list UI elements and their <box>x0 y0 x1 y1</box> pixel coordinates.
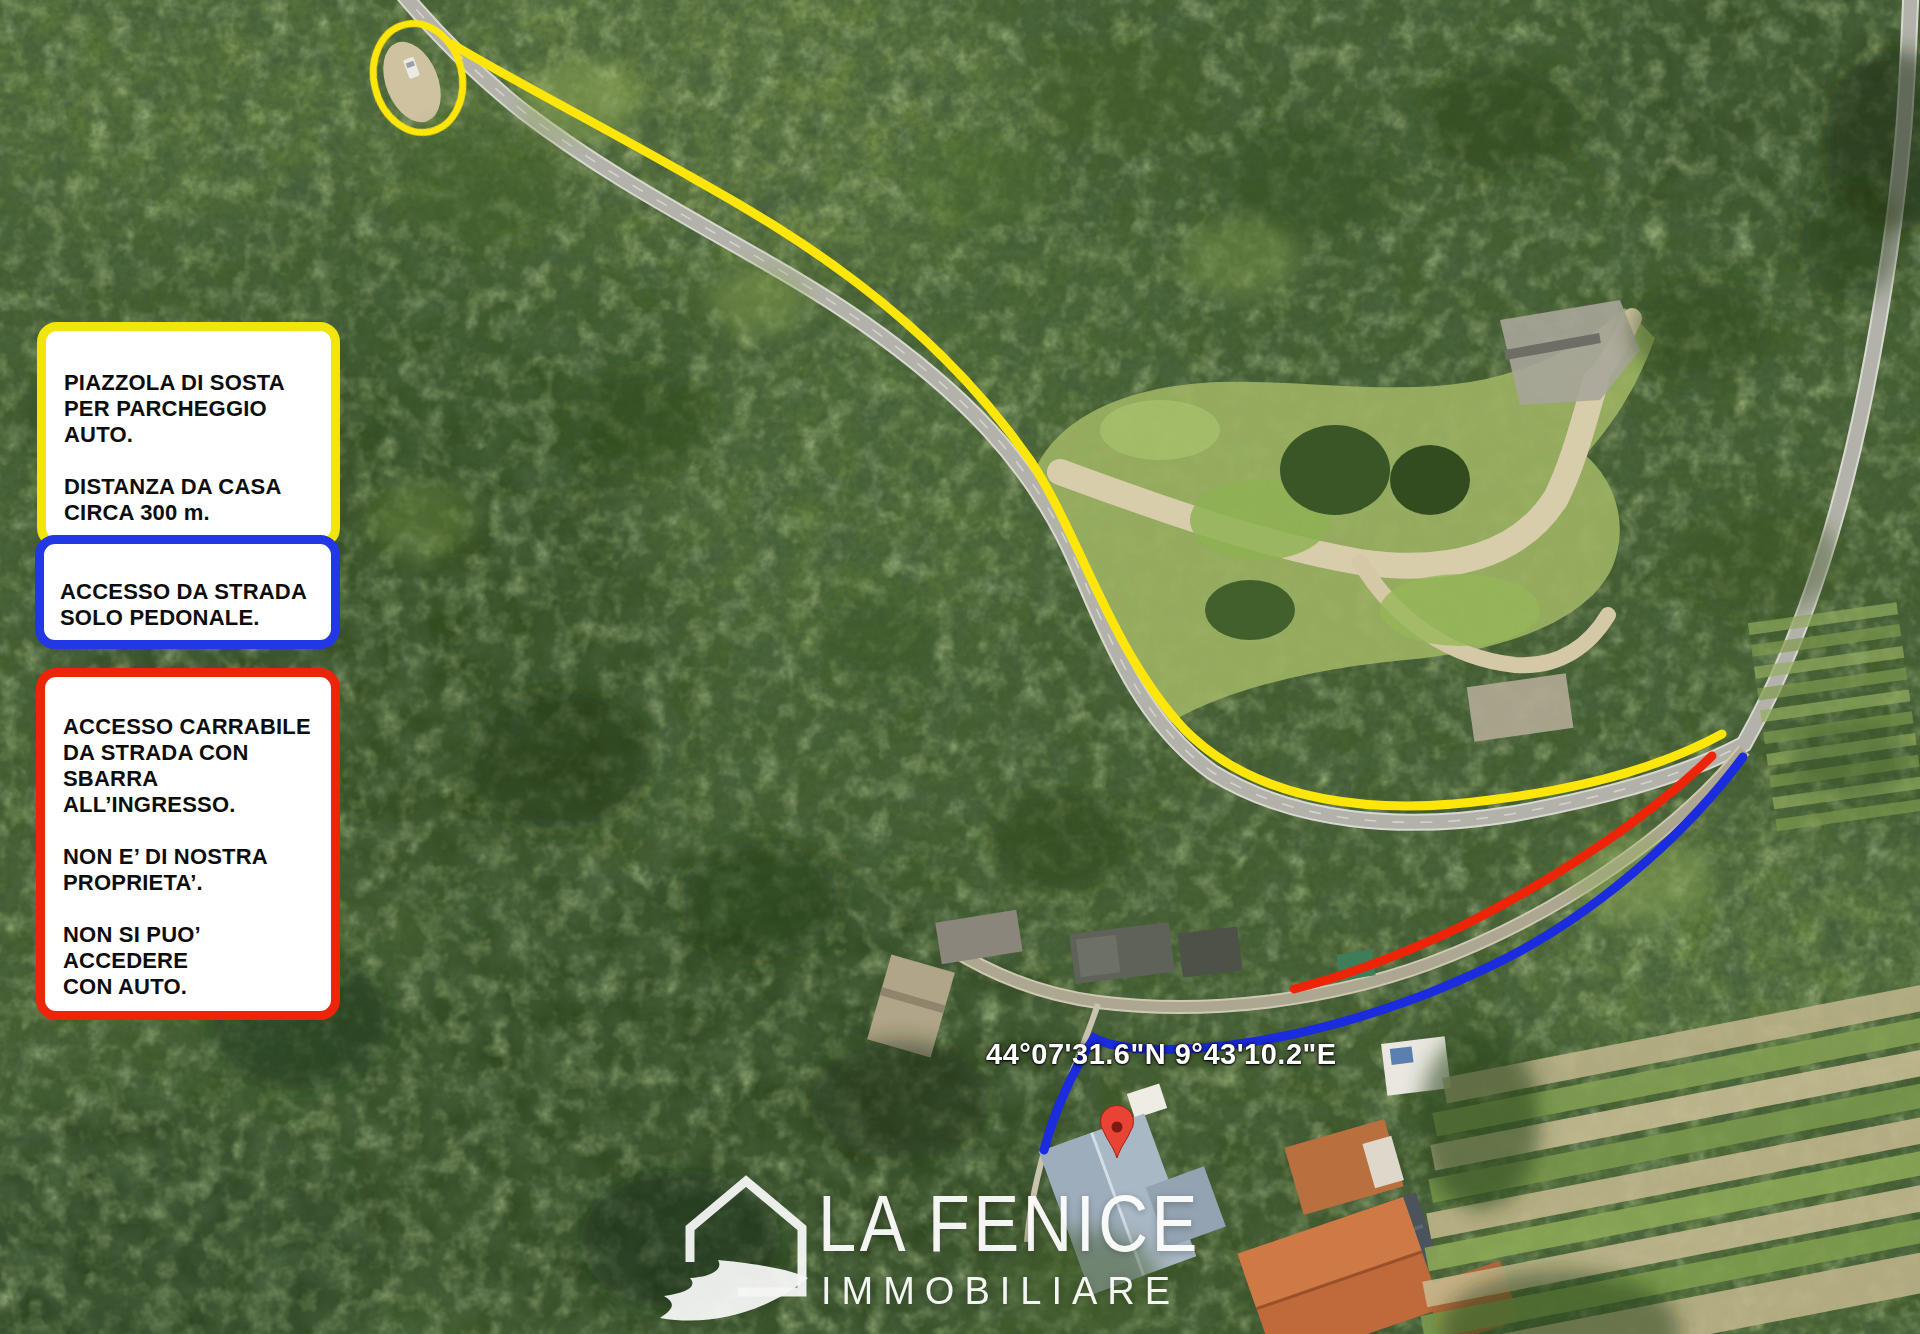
satellite-photo <box>0 0 1920 1334</box>
pedestrian-access-note: ACCESSO DA STRADA SOLO PEDONALE. <box>35 535 340 649</box>
driveway-access-note: ACCESSO CARRABILE DA STRADA CON SBARRA A… <box>36 668 340 1020</box>
driveway-note-text: ACCESSO CARRABILE DA STRADA CON SBARRA A… <box>63 714 311 999</box>
parking-note-text: PIAZZOLA DI SOSTA PER PARCHEGGIO AUTO. D… <box>64 370 285 525</box>
parking-note: PIAZZOLA DI SOSTA PER PARCHEGGIO AUTO. D… <box>37 322 340 548</box>
pedestrian-note-text: ACCESSO DA STRADA SOLO PEDONALE. <box>60 579 307 630</box>
property-aerial-map: PIAZZOLA DI SOSTA PER PARCHEGGIO AUTO. D… <box>0 0 1920 1334</box>
coordinates-label: 44°07'31.6"N 9°43'10.2"E <box>986 1038 1337 1071</box>
